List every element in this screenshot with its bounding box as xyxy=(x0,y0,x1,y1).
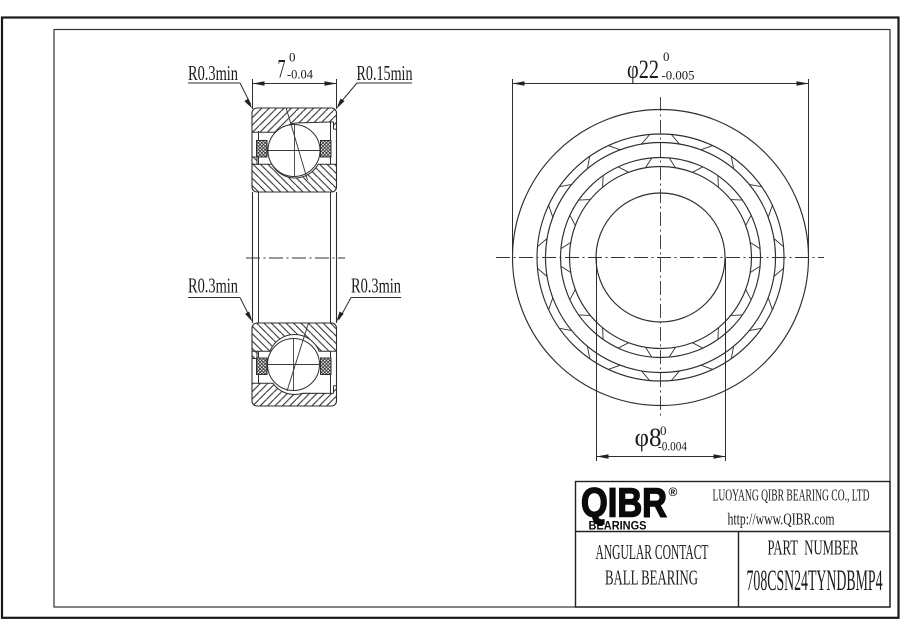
svg-text:ANGULAR CONTACT: ANGULAR CONTACT xyxy=(596,540,709,564)
svg-text:-0.04: -0.04 xyxy=(287,67,313,82)
svg-text:PART NUMBER: PART NUMBER xyxy=(768,535,859,559)
svg-text:R0.3min: R0.3min xyxy=(188,61,238,85)
svg-text:φ22: φ22 xyxy=(627,55,659,84)
svg-text:708CSN24TYNDBMP4: 708CSN24TYNDBMP4 xyxy=(747,564,883,597)
svg-text:BALL BEARING: BALL BEARING xyxy=(605,565,698,589)
svg-text:-0.004: -0.004 xyxy=(658,439,687,454)
svg-text:0: 0 xyxy=(289,50,296,65)
svg-text:0: 0 xyxy=(663,49,670,64)
svg-text:R0.15min: R0.15min xyxy=(357,61,413,85)
svg-text:LUOYANG QIBR BEARING CO., LTD: LUOYANG QIBR BEARING CO., LTD xyxy=(713,486,870,505)
svg-text:R0.3min: R0.3min xyxy=(188,274,238,298)
svg-text:-0.005: -0.005 xyxy=(662,68,695,83)
svg-text:QIBR: QIBR xyxy=(581,480,667,526)
svg-text:®: ® xyxy=(669,485,678,499)
svg-text:R0.3min: R0.3min xyxy=(351,274,401,298)
svg-text:BEARINGS: BEARINGS xyxy=(589,521,647,533)
svg-text:7: 7 xyxy=(278,55,286,84)
svg-text:0: 0 xyxy=(660,423,667,438)
svg-text:http://www.QIBR.com: http://www.QIBR.com xyxy=(728,510,835,529)
